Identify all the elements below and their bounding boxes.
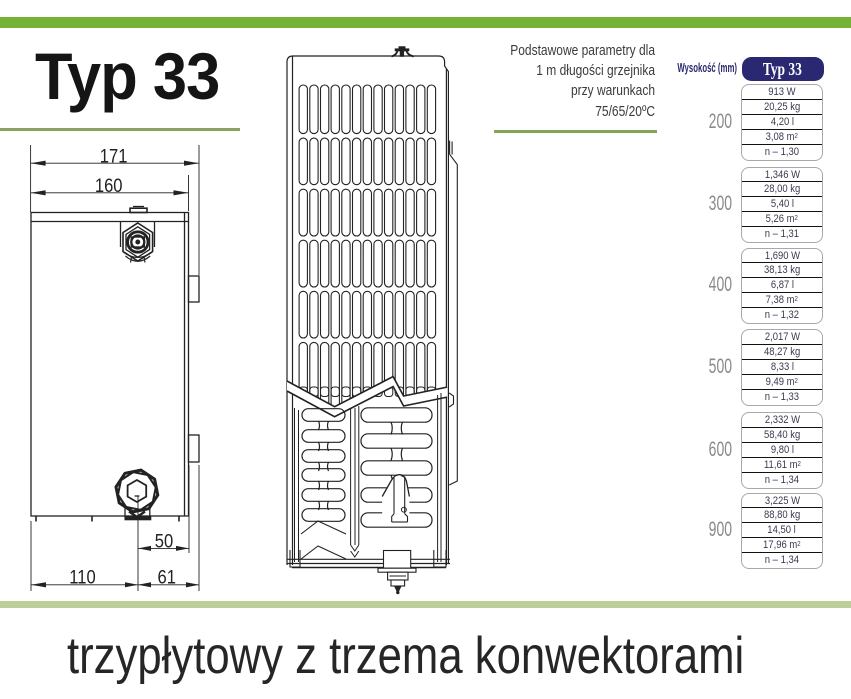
svg-text:110: 110 [69, 566, 95, 588]
svg-text:61: 61 [157, 566, 175, 588]
svg-text:160: 160 [95, 175, 123, 197]
svg-text:50: 50 [155, 530, 173, 552]
svg-text:171: 171 [100, 145, 128, 167]
